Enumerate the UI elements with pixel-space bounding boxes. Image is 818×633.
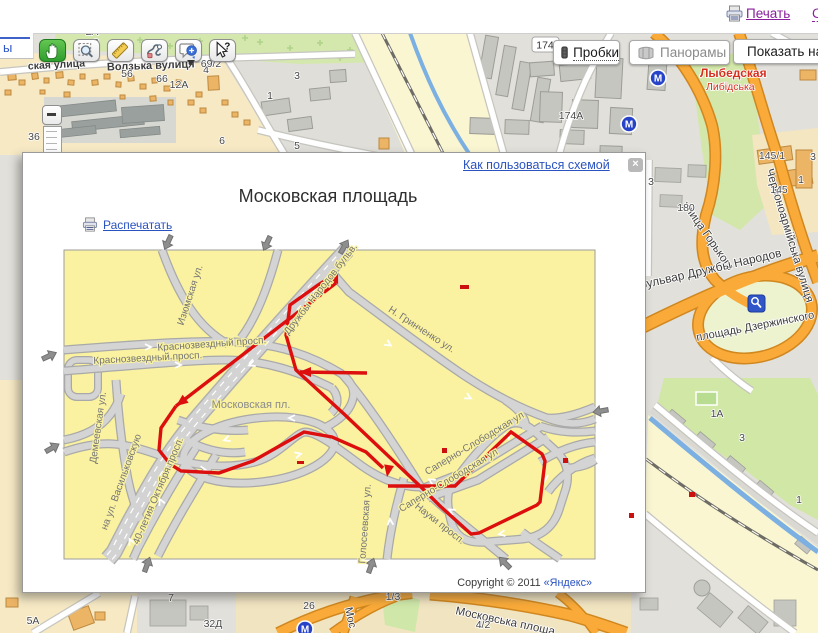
svg-text:1: 1 xyxy=(267,90,273,102)
svg-text:Московская пл.: Московская пл. xyxy=(212,399,291,411)
svg-text:145/1: 145/1 xyxy=(759,150,785,162)
svg-text:Лыбедская: Лыбедская xyxy=(700,66,767,80)
svg-text:174А: 174А xyxy=(559,110,584,122)
svg-text:3: 3 xyxy=(648,176,654,188)
svg-text:М: М xyxy=(625,120,633,131)
svg-text:5: 5 xyxy=(294,140,300,152)
svg-text:М: М xyxy=(654,74,662,85)
svg-text:12А: 12А xyxy=(170,79,189,91)
svg-text:6: 6 xyxy=(219,135,225,147)
svg-text:26: 26 xyxy=(303,600,315,612)
svg-text:3: 3 xyxy=(294,70,300,82)
svg-text:174: 174 xyxy=(536,40,554,52)
svg-text:М: М xyxy=(301,625,309,633)
svg-text:1: 1 xyxy=(798,174,804,186)
svg-text:5А: 5А xyxy=(27,615,40,627)
svg-text:180: 180 xyxy=(677,202,695,214)
svg-text:1: 1 xyxy=(796,494,802,506)
svg-text:145: 145 xyxy=(770,184,788,196)
svg-text:1А: 1А xyxy=(711,408,724,420)
svg-text:Либідська: Либідська xyxy=(706,81,755,93)
svg-text:56: 56 xyxy=(121,68,133,80)
svg-text:3: 3 xyxy=(810,151,816,163)
svg-text:3: 3 xyxy=(739,432,745,444)
svg-text:36: 36 xyxy=(28,131,40,143)
svg-text:?: ? xyxy=(224,42,230,53)
svg-text:7: 7 xyxy=(168,592,174,604)
svg-text:32Д: 32Д xyxy=(204,618,223,630)
svg-text:Copyright © 2011 «Яндекс»: Copyright © 2011 «Яндекс» xyxy=(457,577,592,589)
svg-text:4/2: 4/2 xyxy=(476,619,491,631)
svg-text:66: 66 xyxy=(156,73,168,85)
